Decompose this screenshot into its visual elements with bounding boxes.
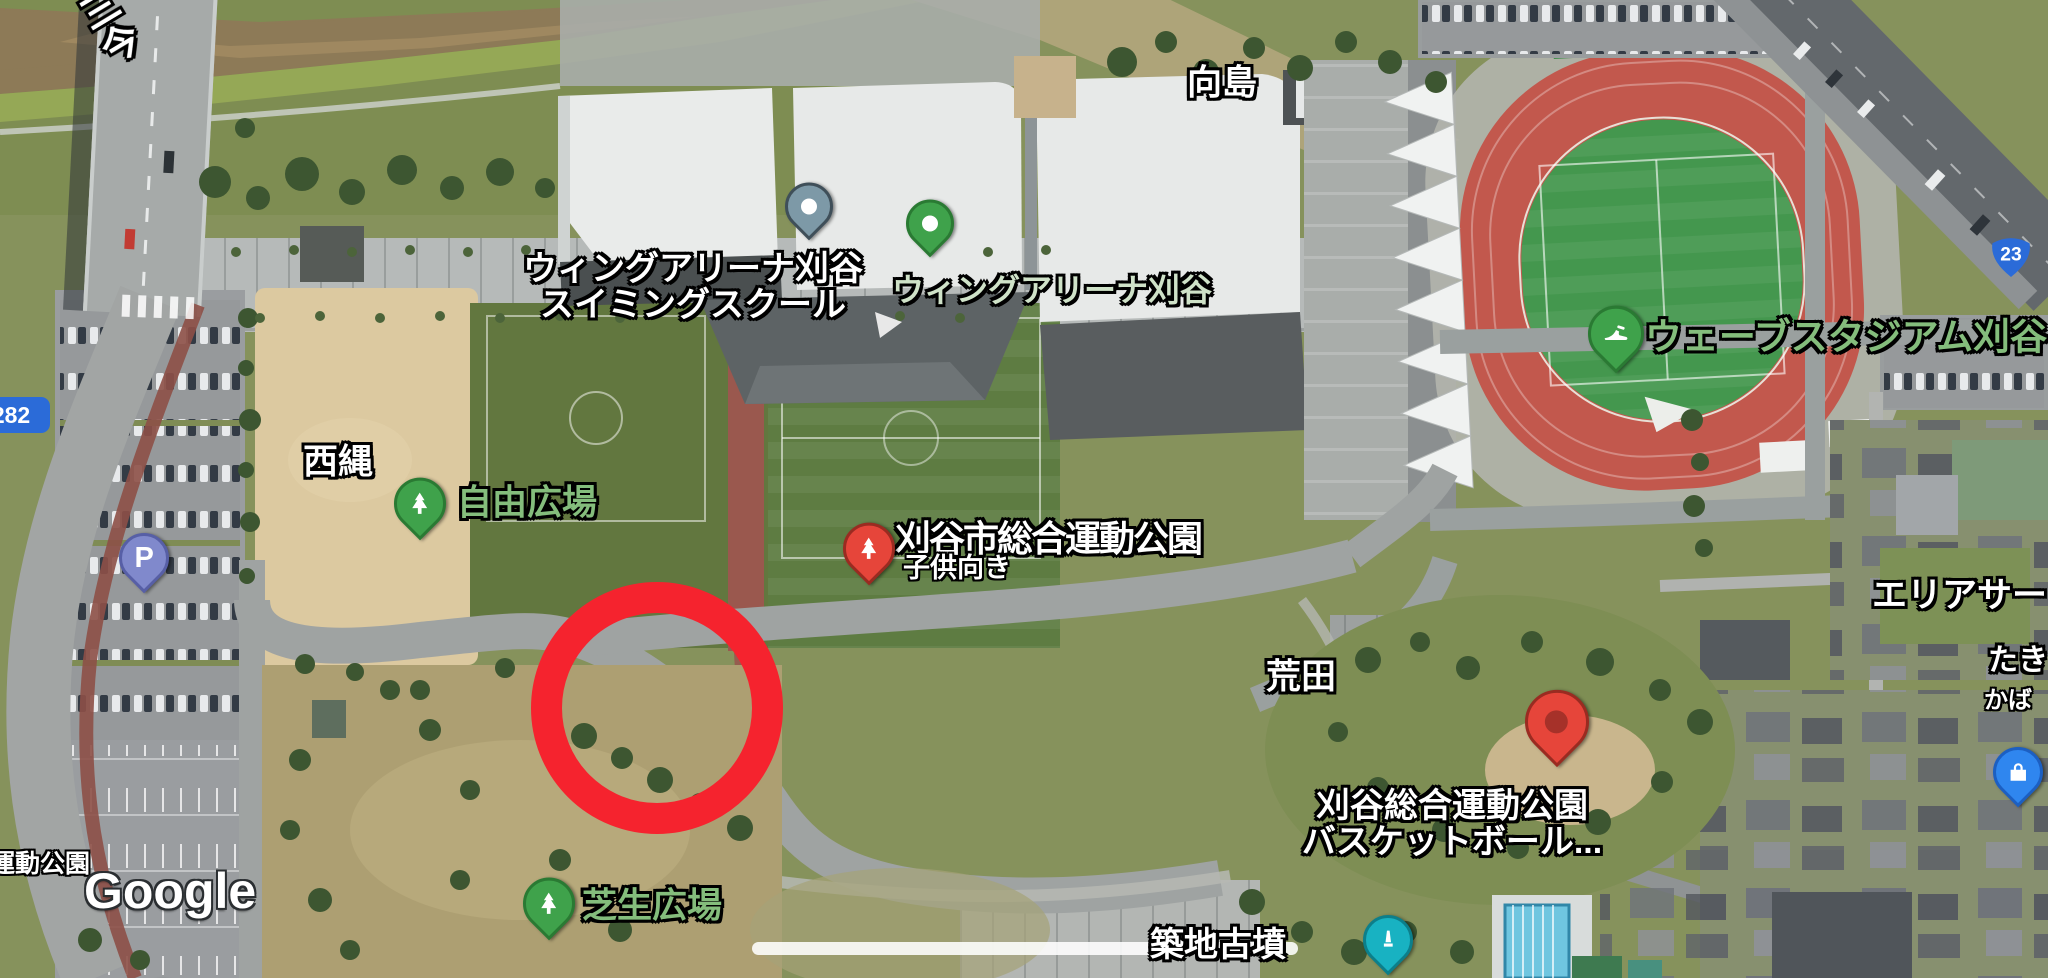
- pin-parking-north[interactable]: P: [119, 533, 169, 594]
- label-wave-stadium[interactable]: ウェーブスタジアム刈谷: [1645, 317, 2047, 356]
- pin-tsukiji-kofun[interactable]: [1363, 915, 1413, 976]
- route-shield-282: 282: [0, 397, 50, 433]
- route-shield-23-number: 23: [2000, 244, 2022, 265]
- white-dot-icon: [801, 198, 817, 214]
- label-area-service-partial[interactable]: エリアサービ: [1872, 577, 2048, 614]
- google-logo[interactable]: Google: [84, 862, 256, 920]
- monument-icon: [1375, 927, 1401, 953]
- pin-wave-stadium[interactable]: [1588, 306, 1644, 374]
- pin-shibafu-hiroba[interactable]: [523, 878, 575, 941]
- label-swim-school-line1: ウィングアリーナ刈谷: [523, 251, 863, 287]
- label-wing-arena[interactable]: ウィングアリーナ刈谷: [892, 274, 1212, 308]
- label-undokoen-partial[interactable]: 運動公園: [0, 851, 90, 878]
- label-arata[interactable]: 荒田: [1266, 658, 1336, 695]
- pin-sports-park[interactable]: [843, 523, 895, 586]
- red-circle-annotation: [531, 582, 783, 834]
- label-mukaijima[interactable]: 向島: [1187, 64, 1257, 101]
- pin-shopping[interactable]: [1993, 747, 2043, 808]
- label-basketball-line1: 刈谷総合運動公園: [1302, 788, 1602, 824]
- white-dot-icon: [922, 215, 938, 231]
- parking-letter-icon: P: [134, 544, 153, 573]
- label-taki-partial[interactable]: たき: [1988, 645, 2048, 677]
- running-shoe-icon: [1601, 319, 1631, 349]
- tree-icon: [406, 490, 434, 518]
- pin-jiyu-hiroba[interactable]: [394, 478, 446, 541]
- route-shield-23: 23: [1989, 234, 2033, 280]
- label-kaba-partial: かば: [1984, 688, 2032, 713]
- shopping-bag-icon: [2005, 759, 2031, 785]
- label-swim-school[interactable]: ウィングアリーナ刈谷 スイミングスクール: [523, 251, 863, 323]
- route-shield-282-number: 282: [0, 402, 30, 429]
- tree-icon: [855, 535, 883, 563]
- label-shibafu-hiroba[interactable]: 芝生広場: [582, 887, 722, 924]
- dark-dot-icon: [1545, 710, 1568, 733]
- label-basketball-court[interactable]: 刈谷総合運動公園 バスケットボール...: [1302, 788, 1602, 860]
- label-jiyu-hiroba[interactable]: 自由広場: [457, 484, 597, 521]
- satellite-imagery: [0, 0, 2048, 978]
- satellite-map: 282 23 三今 向島 ウィングアリーナ刈谷 スイミングスクール ウィングアリ…: [0, 0, 2048, 978]
- pin-wing-arena[interactable]: [906, 199, 954, 258]
- label-nishinawa[interactable]: 西縄: [303, 443, 373, 480]
- label-basketball-line2: バスケットボール...: [1302, 824, 1602, 860]
- label-sports-park-subtitle: 子供向き: [903, 554, 1011, 583]
- pin-swim-school[interactable]: [785, 182, 833, 241]
- label-swim-school-line2: スイミングスクール: [523, 287, 863, 323]
- tree-icon: [535, 890, 563, 918]
- pin-basketball-court[interactable]: [1525, 690, 1589, 768]
- label-tsukiji-kofun[interactable]: 築地古墳: [1150, 927, 1286, 963]
